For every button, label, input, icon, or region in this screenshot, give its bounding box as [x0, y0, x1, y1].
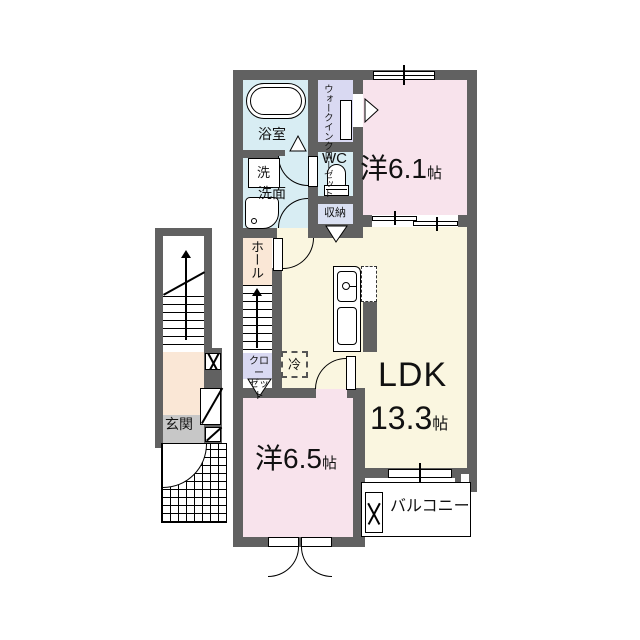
wic-door-leaf [340, 100, 352, 140]
room1-entry-triangle [364, 98, 380, 123]
room1-ldk-slider-tick2 [436, 217, 438, 231]
bathroom-label: 浴室 [258, 127, 286, 141]
room1-entry-opening [353, 94, 363, 127]
ldk-floor-upper [363, 227, 467, 238]
annex-wall-right-upper [204, 228, 212, 352]
room1-label: 洋6.1帖 [360, 155, 442, 183]
room2-french-door-left [268, 537, 299, 547]
room1-top-window-tick [403, 65, 405, 85]
wall-washroom-bottom [233, 228, 277, 238]
closet-label: クロー ゼット [246, 356, 272, 402]
washbasin-drain [251, 218, 257, 224]
hall-label: ホール [250, 240, 263, 286]
fridge-label: 冷 [288, 358, 301, 371]
wall-room2-bottom [233, 537, 365, 547]
bath-door-triangle [289, 135, 307, 152]
room2-french-arc-left [268, 547, 299, 577]
washroom-door-opening [277, 228, 308, 238]
annex-stair-arrow-head [181, 250, 191, 258]
wall-right [467, 70, 477, 492]
ldk-bottom-window-tick [419, 463, 421, 483]
kitchen-faucet-handle [350, 286, 356, 287]
annex-stair-arrow-line [185, 256, 187, 340]
bathtub-inner [250, 87, 302, 115]
room2-door-opening [316, 388, 347, 398]
wc-door-leaf [308, 156, 318, 187]
room2-label: 洋6.5帖 [255, 445, 337, 473]
ldk-unit: 帖 [432, 416, 448, 433]
kitchen-hood-dashed [361, 266, 377, 302]
annex-stair-treads [163, 296, 204, 348]
wall-slide-stub-right [457, 215, 467, 227]
balcony-x-marker [365, 492, 383, 533]
closet-line1: クロー [249, 356, 269, 379]
ldk-size-label: 13.3帖 [370, 402, 448, 434]
hall-stairs-arrow-line [256, 294, 258, 348]
room2-unit: 帖 [322, 455, 337, 472]
washroom-label: 洗面 [258, 186, 286, 200]
room2-french-door-right [301, 537, 332, 547]
room2-french-arc-right [301, 547, 332, 577]
room2-name: 洋6.5 [255, 443, 322, 474]
closet-line2: ゼット [249, 379, 269, 402]
annex-landing-floor [163, 352, 204, 415]
wall-left [233, 70, 243, 547]
hall-ldk-door-leaf [273, 238, 283, 271]
kitchen-lower-cabinet [337, 307, 357, 345]
annex-wall-left [155, 228, 163, 448]
storage-label: 収納 [324, 208, 346, 219]
balcony-label: バルコニー [390, 499, 470, 515]
kitchen-faucet [342, 282, 350, 290]
floor-plan: 浴室 洗 洗面 WC ウォークインクローゼット 収納 洋6.1帖 ホール クロー… [0, 0, 640, 640]
ldk-size: 13.3 [370, 400, 432, 436]
room1-ldk-slider-tick1 [394, 211, 396, 225]
room2-door-leaf [346, 356, 356, 390]
room1-unit: 帖 [427, 165, 442, 182]
wall-top [233, 70, 477, 80]
room1-name: 洋6.1 [360, 153, 427, 184]
annex-window-x [205, 353, 221, 370]
hall-stairs-arrow-head [252, 288, 262, 296]
ldk-label: LDK [378, 358, 447, 392]
entrance-label: 玄関 [165, 417, 193, 431]
washer-label: 洗 [257, 166, 270, 179]
walk-in-closet-label: ウォークインクローゼット [321, 84, 332, 142]
storage-door-triangle [325, 225, 348, 243]
wall-kitchen-stub [363, 302, 377, 352]
washbasin [245, 197, 279, 229]
